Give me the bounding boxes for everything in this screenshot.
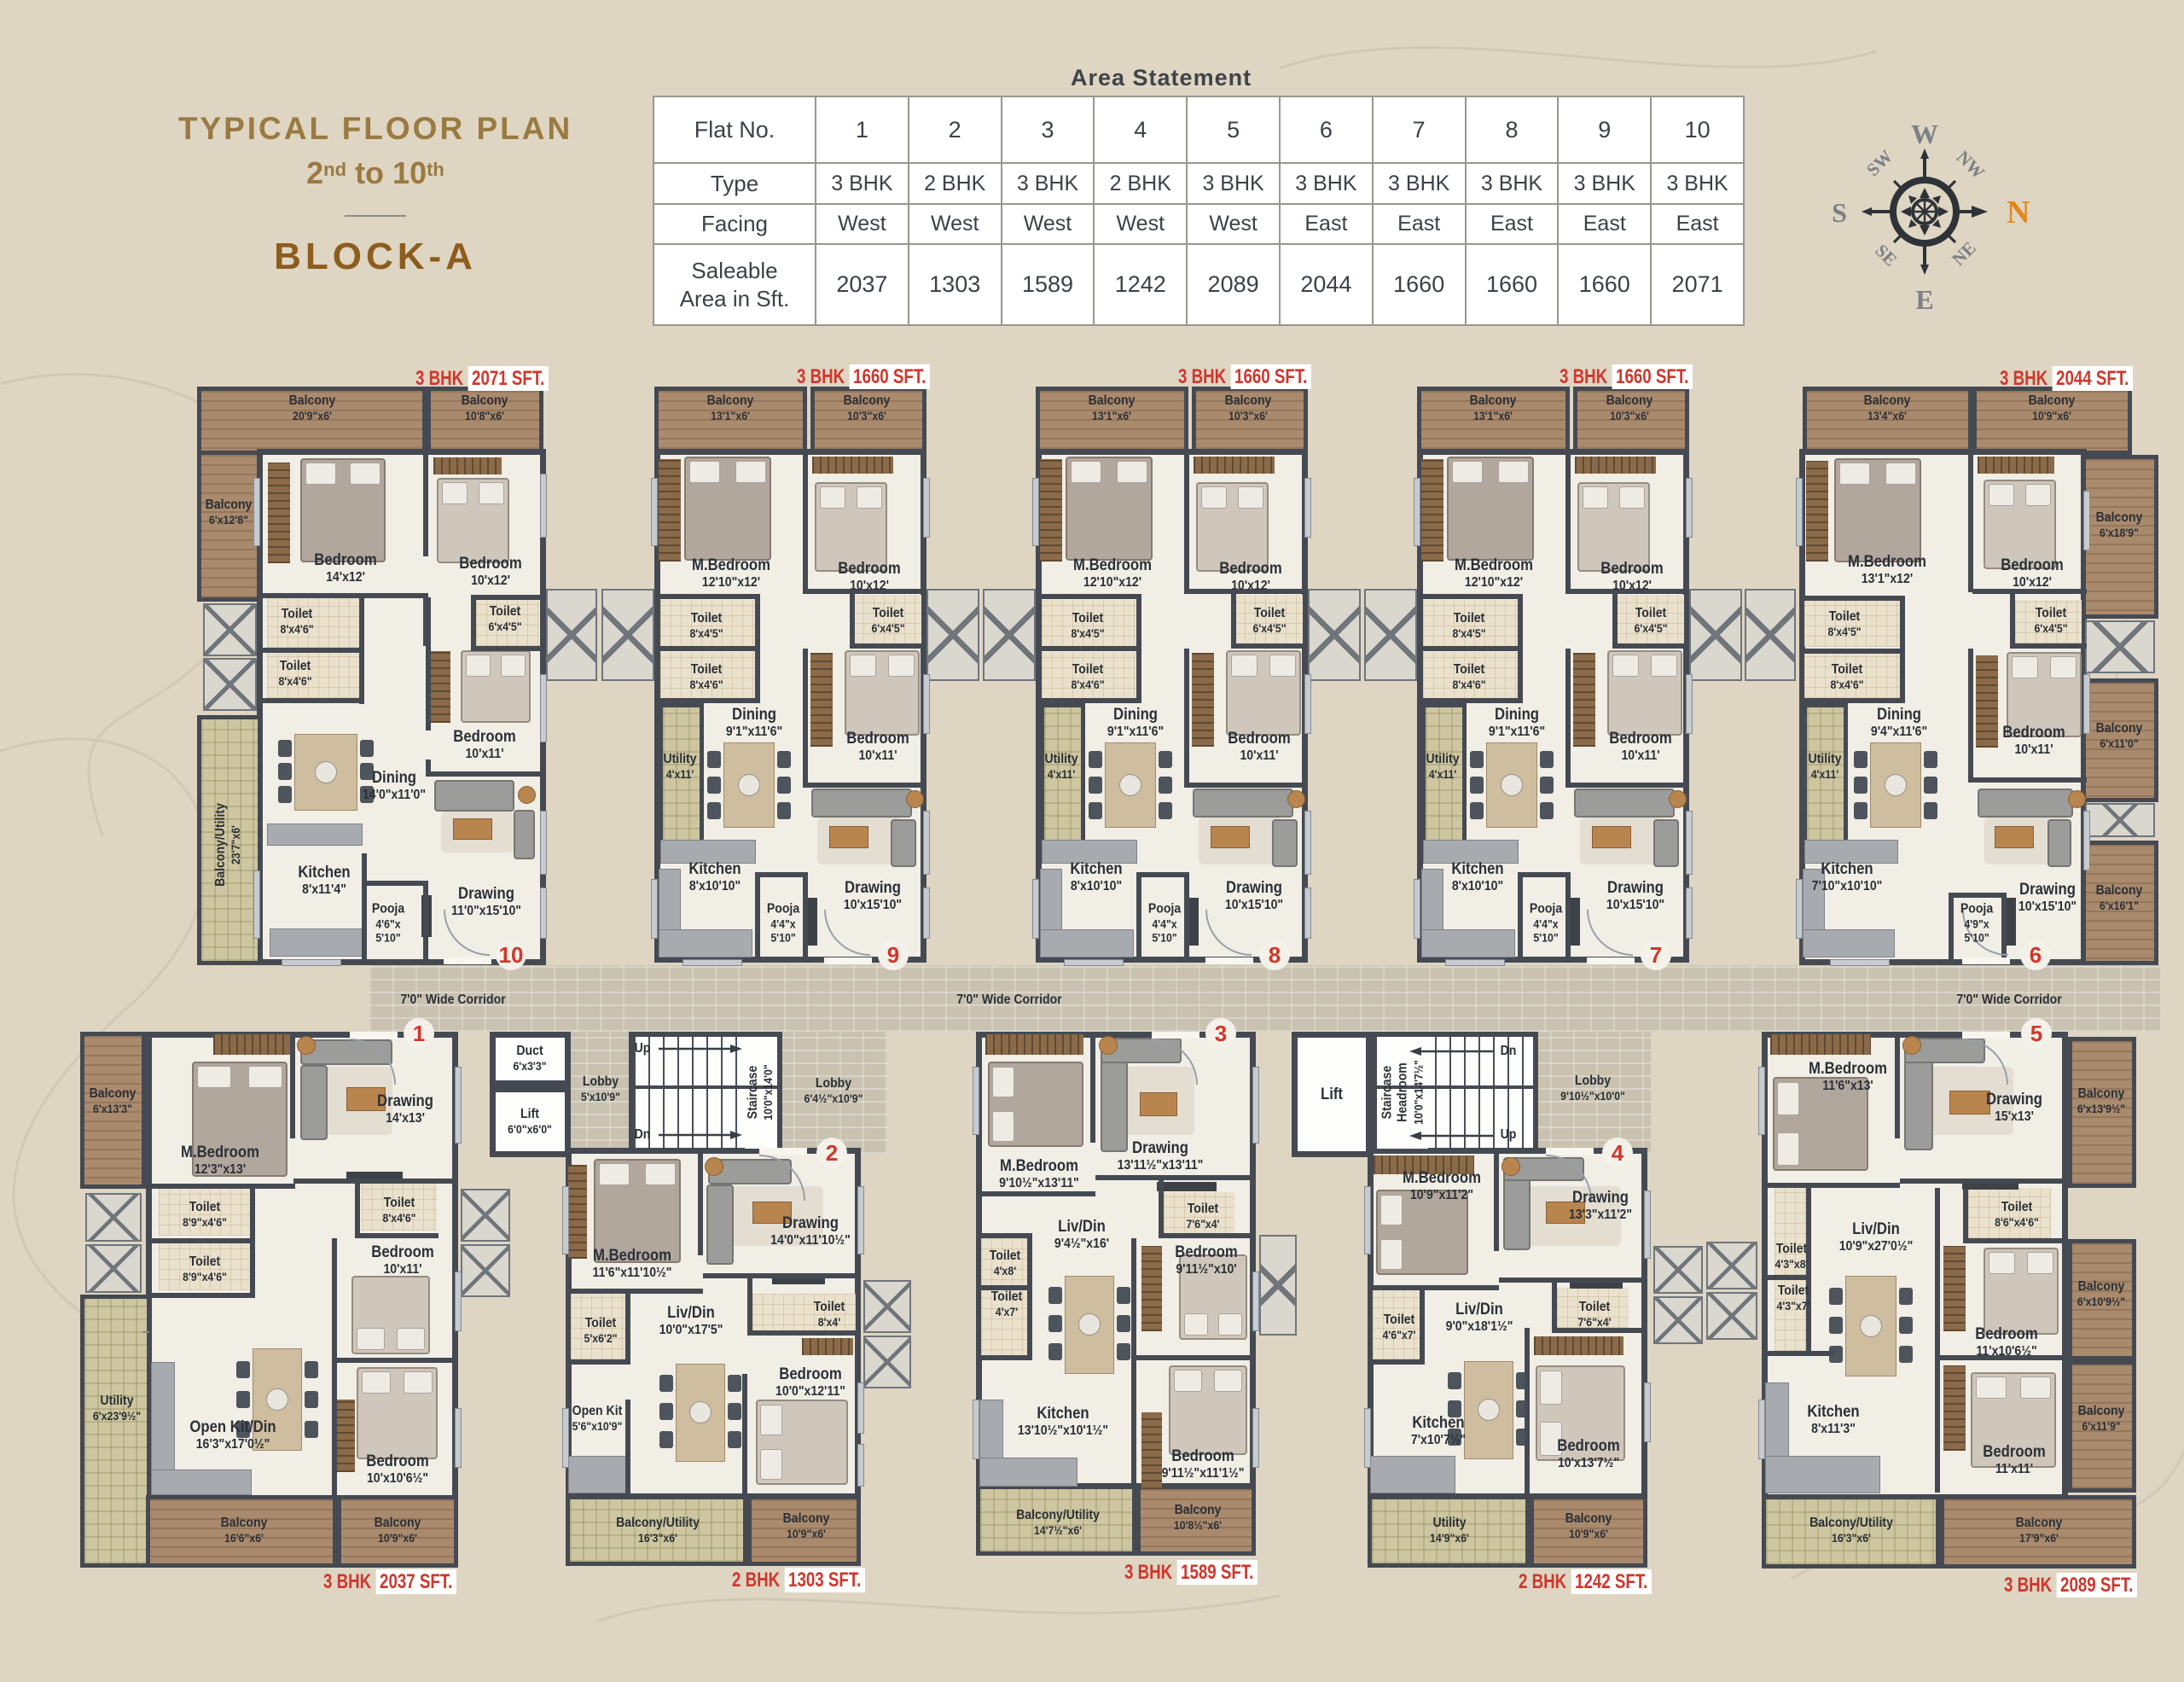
svg-text:E: E — [1915, 284, 1933, 315]
svg-text:S: S — [1832, 197, 1847, 228]
svg-text:NE: NE — [1948, 237, 1980, 270]
svg-text:W: W — [1911, 119, 1938, 149]
svg-text:N: N — [2007, 195, 2030, 230]
svg-text:NW: NW — [1953, 147, 1989, 183]
svg-text:SW: SW — [1862, 146, 1896, 180]
svg-text:SE: SE — [1871, 240, 1901, 270]
